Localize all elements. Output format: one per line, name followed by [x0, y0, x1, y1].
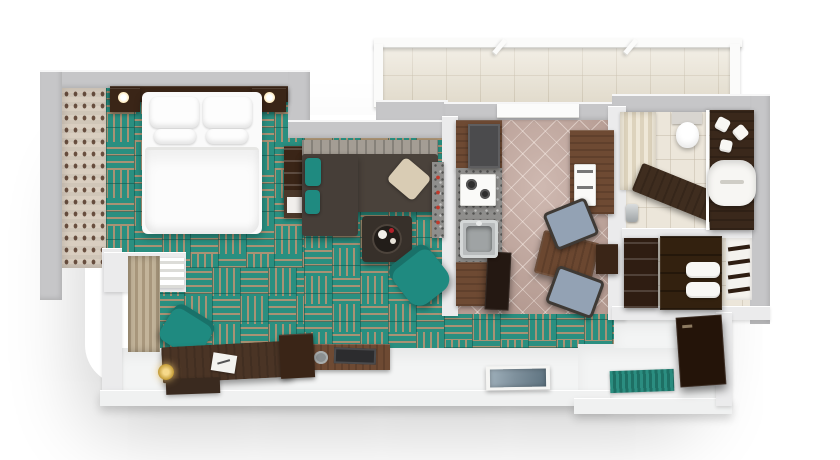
- kitchen-balcony-window: [497, 104, 579, 118]
- burner-icon: [466, 179, 477, 190]
- television: [334, 347, 377, 364]
- bedside-lamp-icon: [118, 92, 129, 103]
- window-drapes: [128, 256, 160, 352]
- double-bed: [142, 92, 262, 234]
- floor-mat: [166, 377, 221, 395]
- wardrobe-handle-icon: [682, 325, 692, 329]
- teal-pillow: [305, 190, 320, 214]
- bedroom-wallpaper-wall: [62, 88, 110, 268]
- balcony-glass-railing: [374, 38, 742, 48]
- kitchen-sink: [460, 220, 498, 258]
- sink-drain-icon: [720, 180, 744, 184]
- ladder-bar-icon: [728, 286, 750, 293]
- towel-stack: [686, 262, 720, 278]
- folded-towel: [719, 139, 733, 153]
- teal-pillow: [305, 158, 321, 186]
- sink-basin: [466, 226, 492, 252]
- wall-entry-bottom: [574, 398, 732, 414]
- vessel-sink: [708, 160, 756, 206]
- pen-icon: [217, 359, 230, 365]
- oven-handle-icon: [577, 170, 593, 173]
- refrigerator: [468, 124, 500, 168]
- balcony-glass-end-left: [374, 44, 383, 108]
- oven-handle-icon: [577, 186, 593, 189]
- teapot-icon: [378, 230, 387, 239]
- duvet: [145, 147, 259, 234]
- floor-plan-render: [0, 0, 840, 460]
- faucet-icon: [476, 221, 482, 226]
- burner-icon: [480, 189, 490, 199]
- floor-picture: [486, 365, 550, 390]
- desk-return: [279, 333, 315, 379]
- open-shelving: [624, 238, 658, 308]
- bar-ledge: [432, 162, 444, 238]
- pillow-small: [154, 129, 196, 144]
- red-knobs-icon: [435, 170, 441, 230]
- cooktop: [460, 174, 496, 206]
- towel-stack: [686, 282, 720, 298]
- tub-faucet-icon: [626, 204, 638, 222]
- tall-entry-cabinet: [484, 251, 511, 310]
- glass-bowl-icon: [314, 351, 328, 364]
- berry-dish-icon: [389, 228, 394, 233]
- pillow-small: [206, 129, 248, 144]
- entry-wardrobe: [676, 314, 727, 387]
- toilet: [676, 122, 699, 148]
- entry-doormat: [610, 369, 675, 393]
- notepad: [211, 352, 238, 374]
- towel-ladder: [726, 238, 752, 300]
- wall-living-top: [288, 120, 456, 138]
- ladder-bar-icon: [728, 272, 750, 279]
- picture-artwork: [490, 369, 546, 388]
- serving-cabinet: [596, 244, 618, 274]
- serving-tray: [372, 224, 402, 254]
- bedside-lamp-icon: [264, 92, 275, 103]
- pillow: [203, 97, 252, 128]
- ladder-bar-icon: [728, 258, 750, 265]
- brass-lamp-icon: [158, 364, 174, 380]
- pillow: [150, 97, 199, 128]
- wall-left: [40, 70, 62, 300]
- cup-icon: [390, 238, 396, 244]
- ladder-bar-icon: [728, 244, 750, 251]
